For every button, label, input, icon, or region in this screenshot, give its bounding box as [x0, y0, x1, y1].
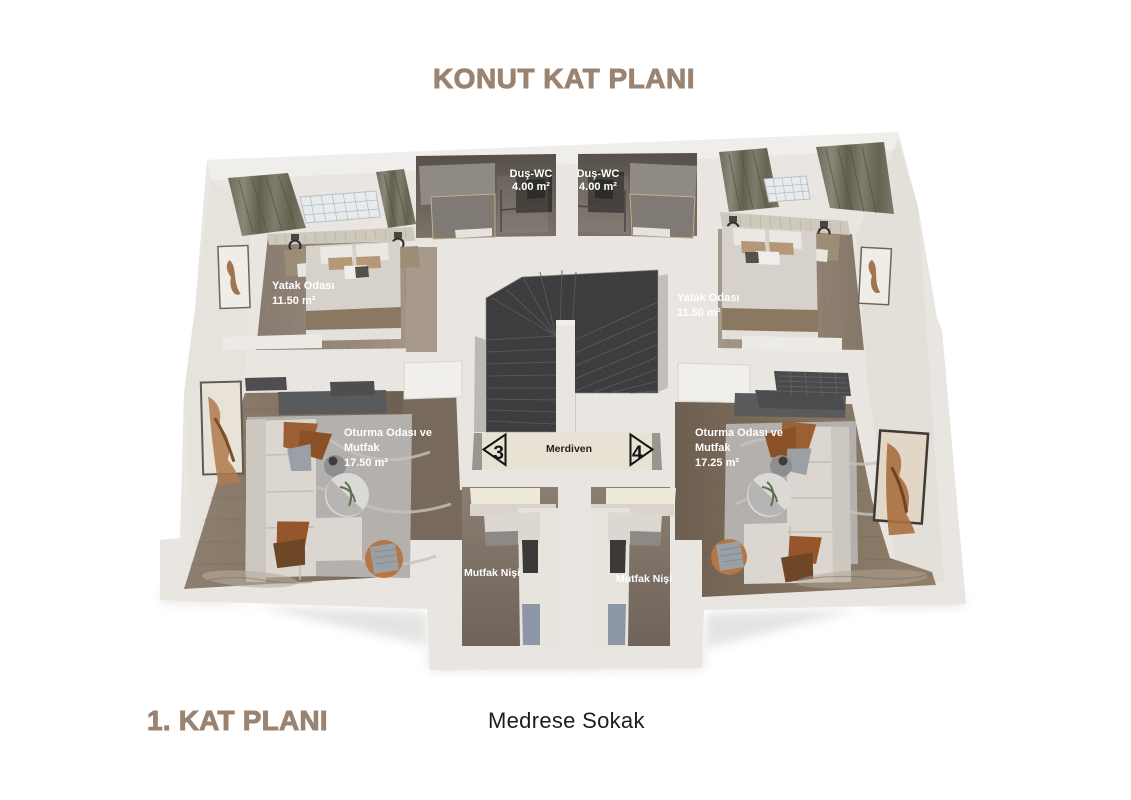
svg-text:KONUT KAT PLANI: KONUT KAT PLANI [433, 63, 695, 94]
svg-text:Oturma Odası ve: Oturma Odası ve [695, 427, 783, 439]
svg-text:1. KAT PLANI: 1. KAT PLANI [147, 705, 328, 736]
svg-text:17.25 m²: 17.25 m² [695, 457, 739, 469]
svg-text:11.50 m²: 11.50 m² [677, 307, 721, 319]
svg-text:Oturma Odası ve: Oturma Odası ve [344, 427, 432, 439]
svg-text:Mutfak: Mutfak [344, 442, 380, 454]
svg-text:4: 4 [632, 443, 643, 464]
svg-text:Duş-WC: Duş-WC [510, 168, 553, 180]
svg-text:Yatak Odası: Yatak Odası [677, 292, 739, 304]
svg-text:Mutfak Nişi: Mutfak Nişi [464, 567, 520, 579]
svg-text:Mutfak Nişi: Mutfak Nişi [616, 573, 672, 585]
svg-text:Yatak Odası: Yatak Odası [272, 280, 334, 292]
svg-text:4.00 m²: 4.00 m² [579, 181, 617, 193]
svg-text:17.50 m²: 17.50 m² [344, 457, 388, 469]
svg-text:11.50 m²: 11.50 m² [272, 295, 316, 307]
svg-text:Merdiven: Merdiven [546, 443, 592, 455]
svg-text:Duş-WC: Duş-WC [577, 168, 620, 180]
svg-text:3: 3 [493, 443, 504, 464]
svg-text:Mutfak: Mutfak [695, 442, 731, 454]
svg-text:Medrese Sokak: Medrese Sokak [488, 708, 645, 733]
svg-text:4.00 m²: 4.00 m² [512, 181, 550, 193]
